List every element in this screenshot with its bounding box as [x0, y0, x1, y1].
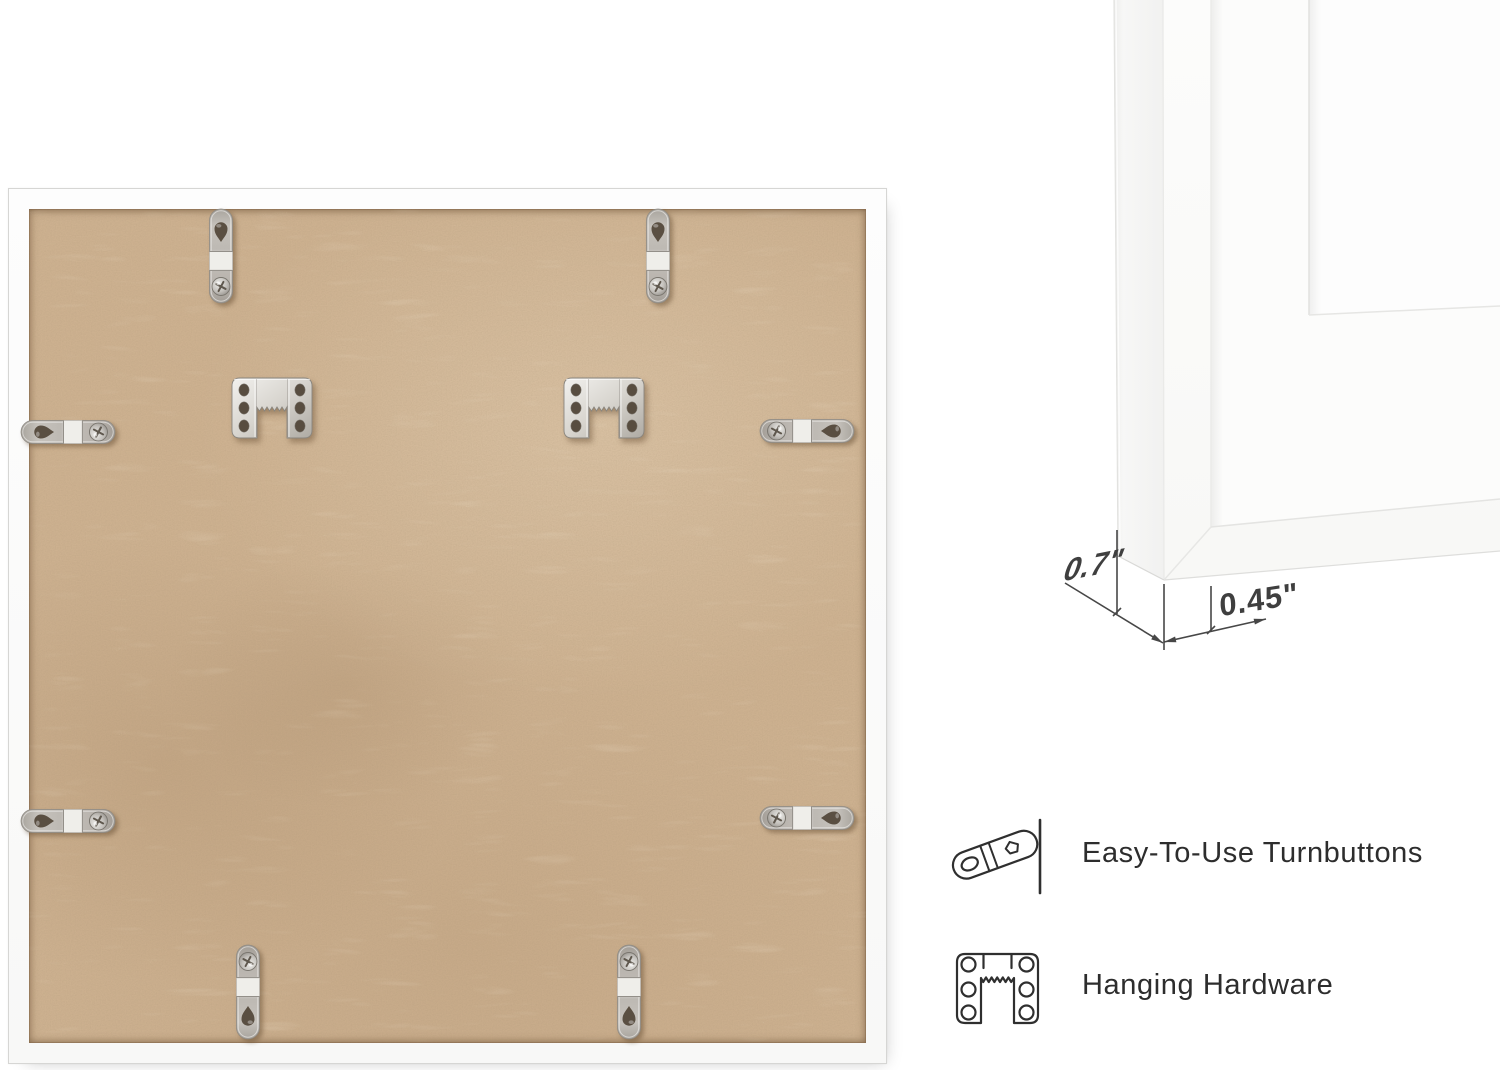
turnbutton-right-upper [758, 416, 856, 446]
feature-label-turnbuttons: Easy-To-Use Turnbuttons [1082, 837, 1423, 870]
sawtooth-hanger-left [230, 376, 314, 440]
feature-label-hanging-hardware: Hanging Hardware [1082, 969, 1333, 1002]
mat-opening [1309, 0, 1500, 315]
product-infographic: 0.7" 0.45" Easy-To-Use Turnbuttons Hangi… [0, 0, 1500, 1070]
mdf-texture [29, 209, 866, 1043]
hanging-hardware-icon [950, 946, 1045, 1031]
mdf-backing [29, 209, 866, 1043]
sawtooth-hanger-right [562, 376, 646, 440]
turnbutton-left-lower [19, 806, 117, 836]
moulding-side-face [1114, 0, 1164, 580]
turnbutton-top-right [643, 207, 673, 305]
frame-back-photo [8, 188, 887, 1064]
turnbutton-icon [948, 810, 1048, 900]
turnbutton-right-lower [758, 803, 856, 833]
turnbutton-bottom-right [614, 943, 644, 1041]
turnbutton-top-left [206, 207, 236, 305]
turnbutton-bottom-left [233, 943, 263, 1041]
turnbutton-left-upper [19, 417, 117, 447]
